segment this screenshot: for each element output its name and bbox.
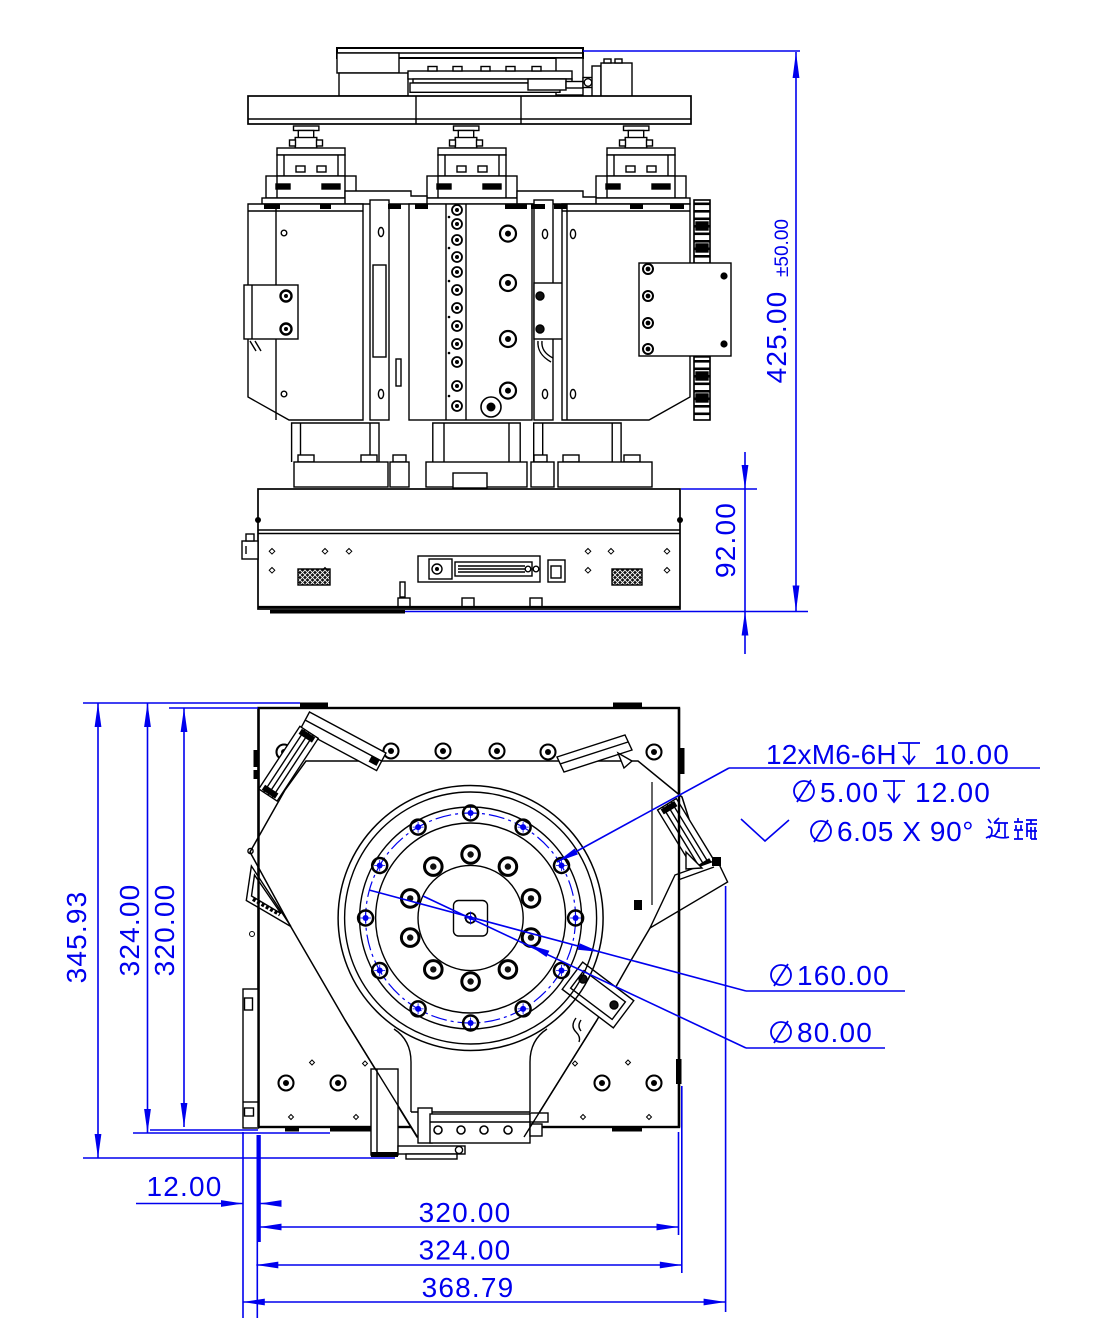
svg-text:320.00: 320.00 xyxy=(149,884,180,977)
svg-text:160.00: 160.00 xyxy=(797,960,890,991)
svg-text:12.00: 12.00 xyxy=(146,1171,222,1202)
svg-text:92.00: 92.00 xyxy=(710,502,741,578)
svg-text:425.00: 425.00 xyxy=(761,291,792,384)
svg-text:5.00: 5.00 xyxy=(820,777,879,808)
svg-text:±50.00: ±50.00 xyxy=(772,219,793,277)
svg-text:12.00: 12.00 xyxy=(915,777,991,808)
svg-text:320.00: 320.00 xyxy=(419,1197,512,1228)
svg-text:368.79: 368.79 xyxy=(422,1272,515,1303)
svg-text:6.05 X 90°: 6.05 X 90° xyxy=(837,816,974,847)
svg-text:12xM6-6H: 12xM6-6H xyxy=(766,739,897,770)
svg-text:345.93: 345.93 xyxy=(61,891,92,984)
svg-text:324.00: 324.00 xyxy=(419,1235,512,1266)
svg-text:80.00: 80.00 xyxy=(797,1017,873,1048)
svg-text:324.00: 324.00 xyxy=(114,884,145,977)
svg-text:10.00: 10.00 xyxy=(934,739,1010,770)
